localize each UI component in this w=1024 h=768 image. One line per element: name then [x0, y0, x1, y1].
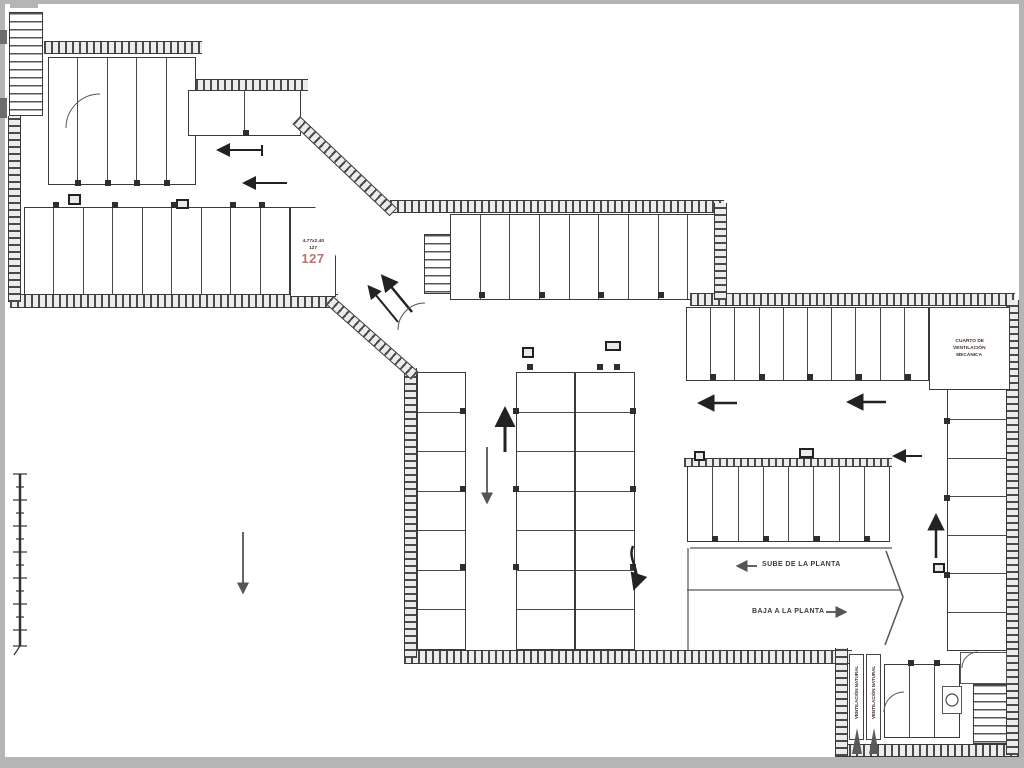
- elevator-symbol: [946, 694, 958, 706]
- door-arc: [884, 692, 904, 712]
- door-arc: [66, 94, 100, 128]
- door-arc: [962, 652, 978, 668]
- arrow: [384, 278, 412, 312]
- arrow: [370, 288, 398, 322]
- floor-plan: CUARTO DE VENTILACIÓN MECÁNICA 4.77x2.40…: [0, 0, 1024, 768]
- ramp-chevron: [885, 551, 903, 645]
- plan-annotations: [0, 0, 1024, 768]
- door-arc: [398, 303, 425, 330]
- arrow: [631, 546, 636, 586]
